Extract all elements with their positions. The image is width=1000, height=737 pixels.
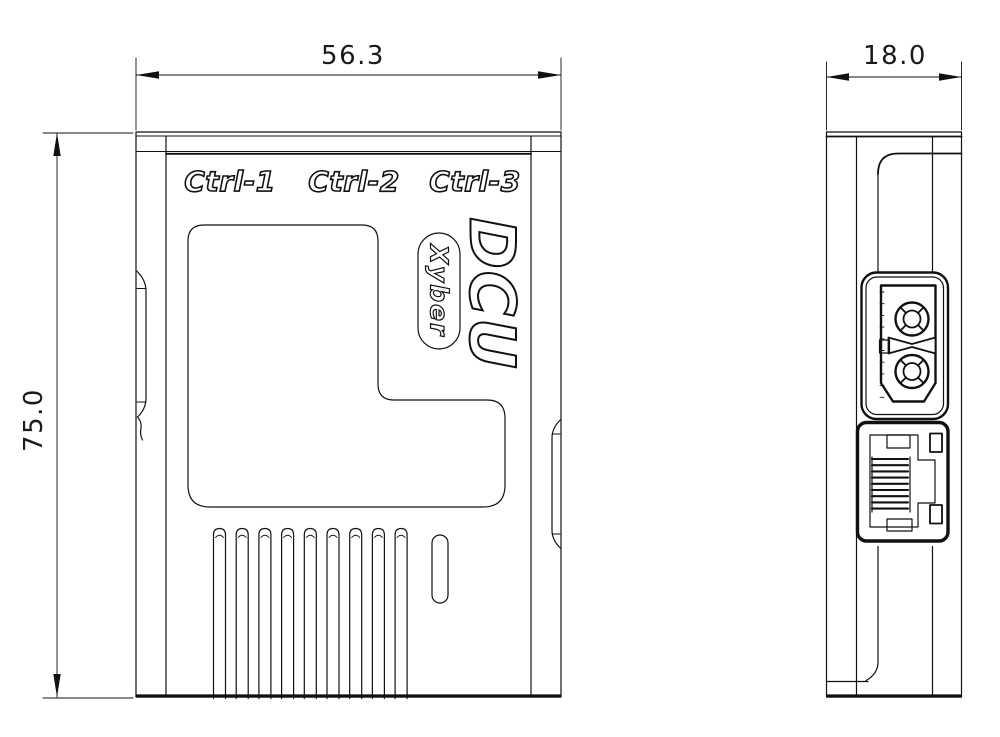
extension-lines: [827, 62, 962, 130]
power-terminal-bottom: [896, 355, 929, 388]
side-panel-edge: [827, 174, 879, 682]
side-view: 18.0: [827, 41, 962, 697]
front-view: 56.3 75.0 Ctrl-1: [19, 41, 561, 699]
arrowhead-right: [939, 73, 962, 80]
product-logo-text: DCU: [455, 217, 528, 370]
jack-tab-bottom: [887, 519, 912, 531]
port-label-ctrl-3: Ctrl-3: [429, 165, 520, 198]
side-panel-top-edge: [878, 154, 962, 175]
height-dimension: 75.0: [19, 133, 133, 698]
connector-key-bowtie: [889, 338, 936, 354]
arrowhead-top: [53, 133, 60, 156]
dcu-technical-drawing: 56.3 75.0 Ctrl-1: [0, 0, 1000, 737]
extension-lines: [43, 133, 133, 698]
power-connector-xt30: [862, 273, 949, 420]
arrowhead-left: [827, 73, 850, 80]
height-dimension-value: 75.0: [19, 388, 49, 452]
ethernet-port-rj45: [858, 423, 949, 542]
jack-notch-top: [930, 434, 942, 453]
jack-notch-bottom: [930, 505, 942, 524]
width-dimension: 56.3: [136, 41, 561, 130]
arrowhead-bottom: [53, 674, 60, 697]
technical-drawing-canvas: 56.3 75.0 Ctrl-1: [0, 0, 1000, 737]
arrowhead-left: [136, 71, 159, 78]
depth-dimension-value: 18.0: [863, 41, 927, 71]
port-label-ctrl-2: Ctrl-2: [308, 165, 399, 198]
oblong-slot: [432, 535, 448, 603]
ethernet-pin-comb: [872, 459, 908, 509]
jack-tab-top: [887, 435, 910, 448]
brand-badge-text: Xyber: [424, 243, 453, 338]
brand-badge: Xyber: [418, 233, 460, 349]
power-terminal-top: [896, 303, 929, 336]
width-dimension-value: 56.3: [321, 41, 385, 71]
port-label-ctrl-1: Ctrl-1: [184, 165, 275, 198]
depth-dimension: 18.0: [827, 41, 962, 130]
mounting-clip-right: [552, 420, 560, 548]
vent-grille: [214, 529, 408, 699]
mounting-clip-left: [137, 271, 146, 440]
jack-cavity: [870, 435, 935, 527]
arrowhead-right: [538, 71, 561, 78]
